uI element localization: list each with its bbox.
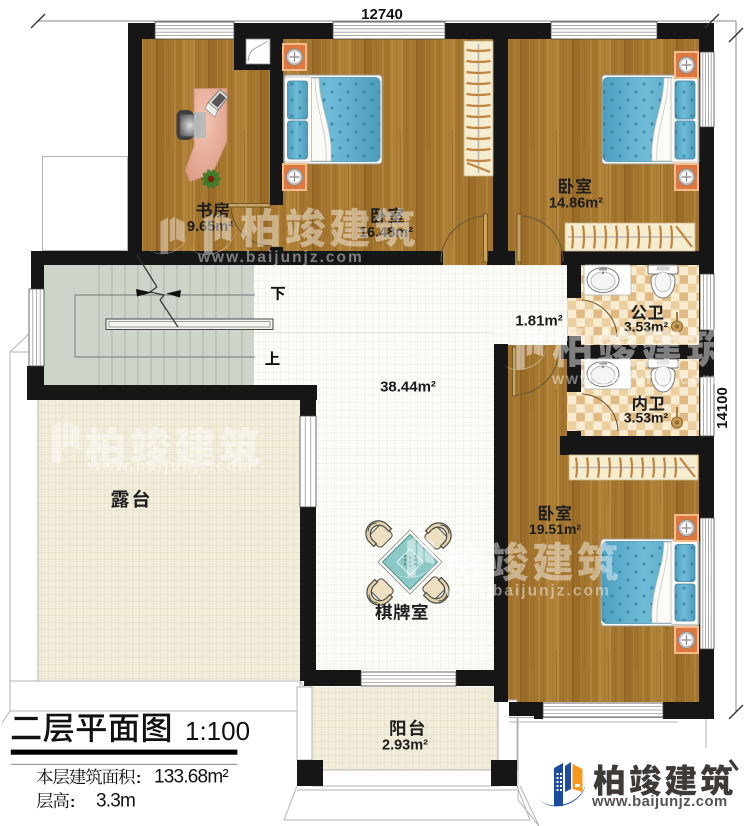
- svg-text:www.baijunjz.com: www.baijunjz.com: [197, 249, 364, 266]
- svg-text:12740: 12740: [361, 6, 403, 23]
- svg-text:2.93m²: 2.93m²: [382, 738, 428, 754]
- svg-text:133.68m²: 133.68m²: [154, 767, 228, 788]
- svg-text:1.81m²: 1.81m²: [515, 313, 563, 330]
- svg-text:www.baijunjz.com: www.baijunjz.com: [444, 583, 611, 600]
- svg-text:14100: 14100: [714, 387, 731, 429]
- svg-text:38.44m²: 38.44m²: [380, 379, 436, 396]
- svg-text:www.baijunjz.com: www.baijunjz.com: [87, 458, 254, 475]
- svg-text:1:100: 1:100: [185, 716, 250, 746]
- svg-text::: :: [70, 794, 75, 811]
- svg-text:3.53m²: 3.53m²: [624, 410, 669, 426]
- svg-text:3.3m: 3.3m: [96, 791, 135, 812]
- svg-text:www.baijunjz.com: www.baijunjz.com: [591, 794, 728, 810]
- svg-text:19.51m²: 19.51m²: [529, 521, 581, 537]
- svg-text:www.baijunjz.com: www.baijunjz.com: [551, 371, 718, 388]
- svg-text::: :: [136, 770, 141, 787]
- svg-text:14.86m²: 14.86m²: [549, 196, 603, 212]
